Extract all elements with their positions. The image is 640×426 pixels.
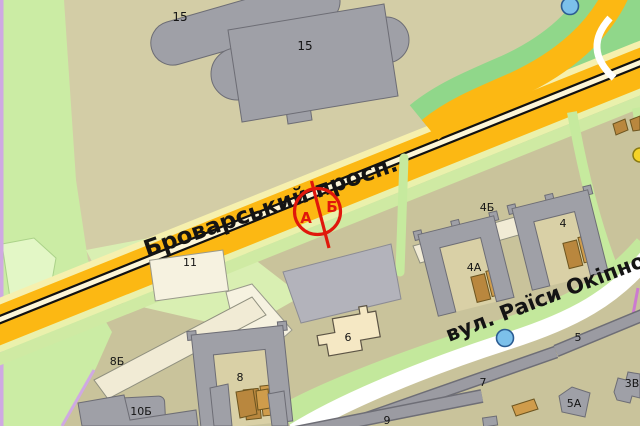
label-8: 8 xyxy=(237,371,244,384)
label-10b: 10Б xyxy=(130,405,152,418)
marker-letter-b: Б xyxy=(326,198,337,216)
label-11: 11 xyxy=(183,256,197,269)
label-4: 4 xyxy=(560,217,567,230)
label-4a: 4А xyxy=(467,261,482,274)
label-3v: 3В xyxy=(625,377,640,390)
label-15-north: 15 xyxy=(172,10,187,24)
map-canvas[interactable]: Броварський просп. вул. Раїси Окіпної 15… xyxy=(0,0,640,426)
label-8b: 8Б xyxy=(110,355,125,368)
poi-dot-north[interactable] xyxy=(562,0,579,15)
marker-letter-a: А xyxy=(300,209,312,227)
label-6: 6 xyxy=(345,331,352,344)
label-5: 5 xyxy=(575,331,582,344)
label-7: 7 xyxy=(480,376,487,389)
shed-small xyxy=(483,416,498,426)
label-15-south: 15 xyxy=(297,39,312,53)
label-4b: 4Б xyxy=(480,201,495,214)
label-9: 9 xyxy=(384,414,391,426)
label-5a: 5А xyxy=(567,397,582,410)
poi-yellow-symbol xyxy=(633,148,640,162)
poi-dot-street[interactable] xyxy=(497,330,514,347)
